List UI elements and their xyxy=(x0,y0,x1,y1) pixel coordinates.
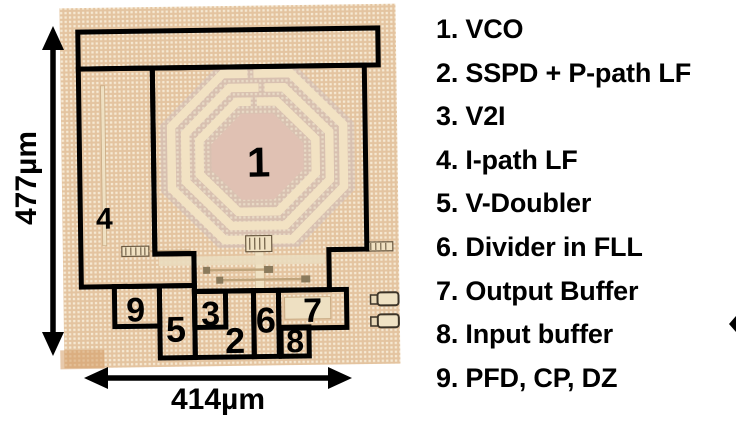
legend-item-6: 6. Divider in FLL xyxy=(436,226,691,270)
legend-item-4: 4. I-path LF xyxy=(436,139,691,183)
legend: 1. VCO 2. SSPD + P-path LF 3. V2I 4. I-p… xyxy=(436,8,691,400)
cropped-artifact xyxy=(729,316,736,332)
ladder-component-right xyxy=(367,242,393,251)
ring-crossover-gap xyxy=(259,83,265,93)
inductor-tap-pad xyxy=(246,235,272,251)
region-9-label: 9 xyxy=(126,291,145,329)
die-photo-group: 1 4 9 5 3 2 6 7 8 xyxy=(55,4,400,370)
ring-crossover-gap xyxy=(251,97,257,107)
region-7-label: 7 xyxy=(303,292,322,330)
region-4-label: 4 xyxy=(96,203,113,236)
width-dimension-label: 414µm xyxy=(171,383,265,416)
figure-canvas: 1 4 9 5 3 2 6 7 8 477µm 414µm 1. VCO 2. … xyxy=(0,0,736,423)
legend-item-5: 5. V-Doubler xyxy=(436,182,691,226)
legend-item-8: 8. Input buffer xyxy=(436,313,691,357)
height-dimension-label: 477µm xyxy=(10,131,43,225)
legend-item-2: 2. SSPD + P-path LF xyxy=(436,52,691,96)
region-2-label: 2 xyxy=(225,320,246,361)
ring-crossover-gap xyxy=(247,69,253,79)
legend-item-1: 1. VCO xyxy=(436,8,691,52)
region-8-label: 8 xyxy=(286,323,304,359)
region-1-label: 1 xyxy=(247,138,271,185)
die-photo-patch xyxy=(60,350,104,370)
legend-item-3: 3. V2I xyxy=(436,95,691,139)
legend-item-9: 9. PFD, CP, DZ xyxy=(436,357,691,401)
region-6-label: 6 xyxy=(256,299,277,340)
region-5-label: 5 xyxy=(166,309,187,350)
region-3-label: 3 xyxy=(201,295,220,333)
legend-item-7: 7. Output Buffer xyxy=(436,270,691,314)
